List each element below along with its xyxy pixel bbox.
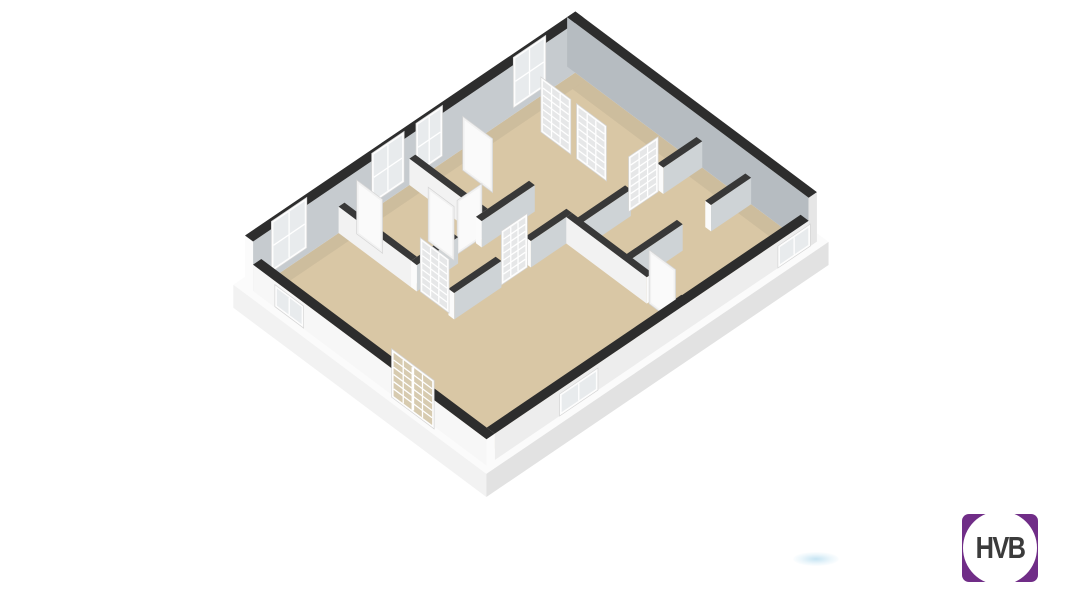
- facade-front-left-cap: [487, 434, 495, 466]
- hvb-logo-text: HVB: [969, 514, 1031, 582]
- floorplan-3d-render: [0, 0, 1066, 600]
- wall-hall-north-b-cap: [476, 217, 482, 248]
- watermark-smudge: [793, 552, 839, 566]
- floorplan-scene: HVB: [0, 0, 1066, 600]
- wall-right-split-2b-cap: [705, 201, 711, 232]
- facade-back-left-cap: [245, 236, 253, 292]
- wall-hall-north-a-cap: [411, 261, 417, 292]
- hvb-logo: HVB: [962, 514, 1038, 582]
